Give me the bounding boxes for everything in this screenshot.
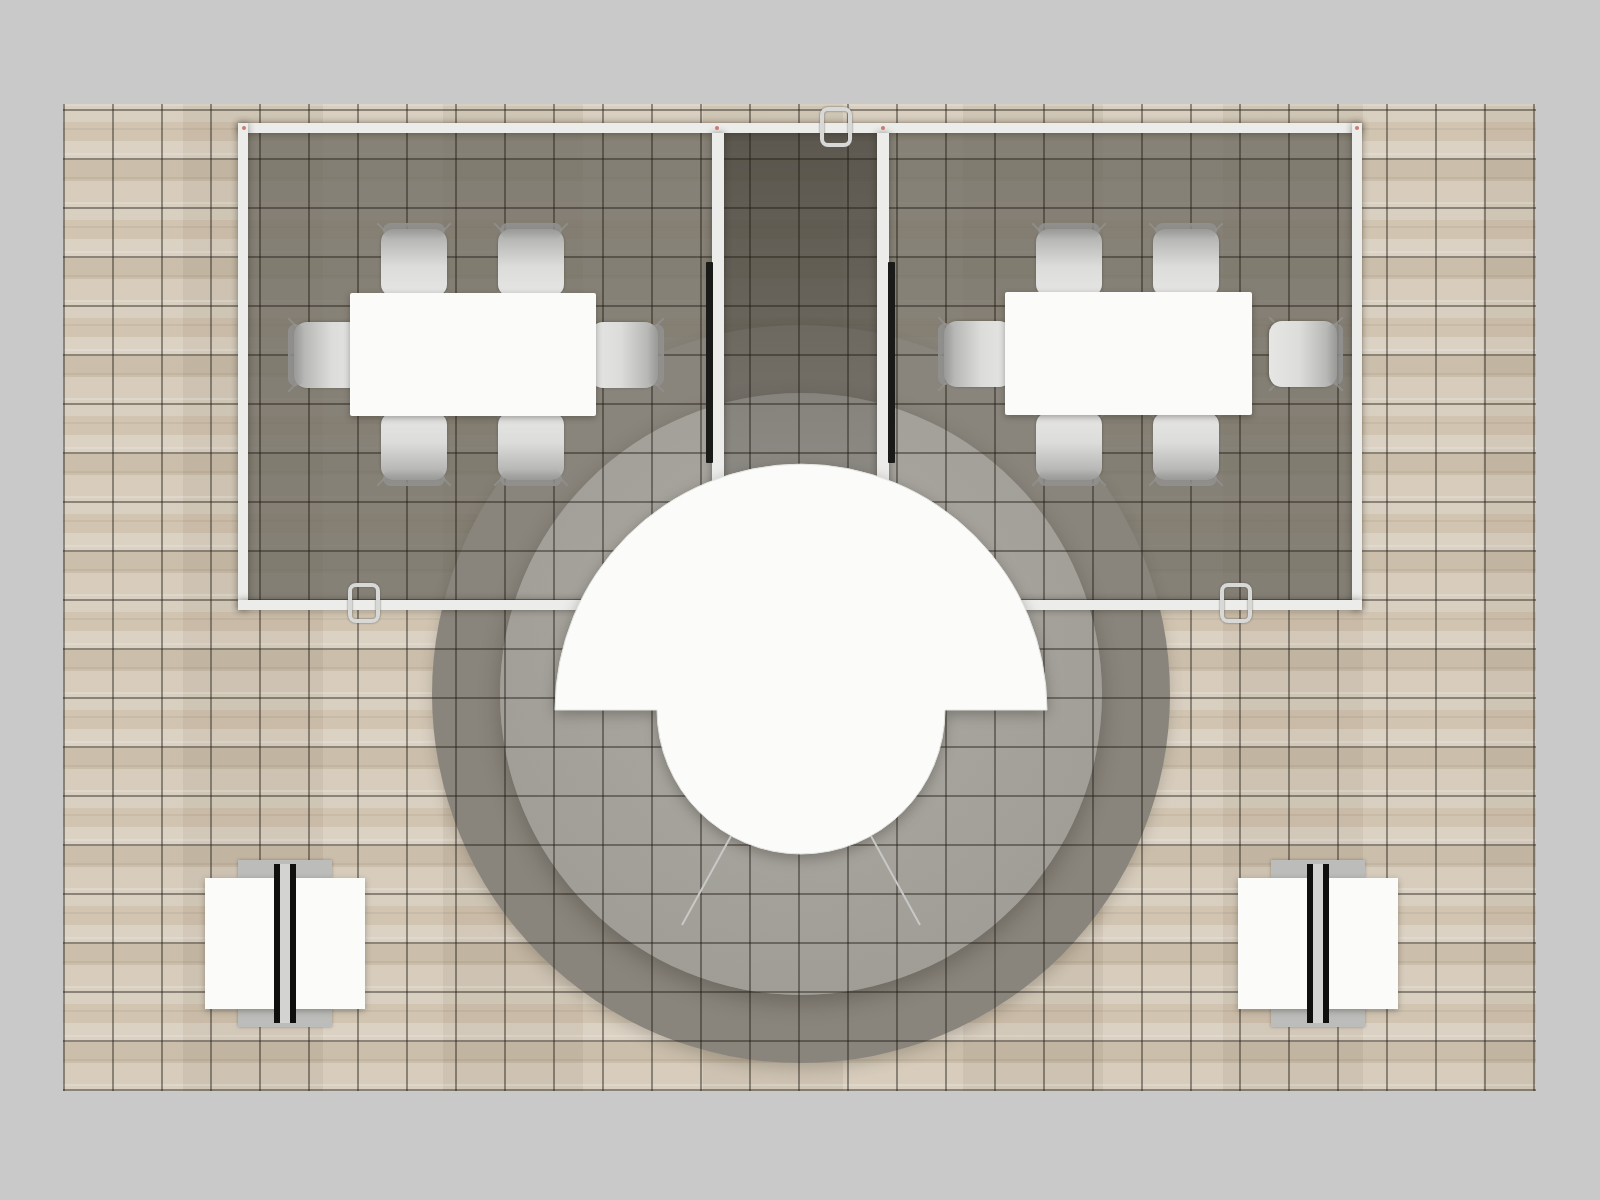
clamp-icon[interactable] [348, 583, 380, 623]
clamp-icon[interactable] [1220, 583, 1252, 623]
wall-west[interactable] [238, 123, 248, 610]
wall-north[interactable] [238, 123, 1362, 133]
wall-south-left-segment[interactable] [238, 600, 724, 610]
chair[interactable] [1153, 223, 1219, 297]
junction-marker [242, 126, 246, 130]
junction-marker [1355, 126, 1359, 130]
chair[interactable] [1036, 412, 1102, 486]
corridor-wall-left[interactable] [712, 133, 724, 610]
chair[interactable] [938, 321, 1012, 387]
conference-table-left[interactable] [350, 293, 596, 416]
chair[interactable] [498, 412, 564, 486]
clamp-icon[interactable] [820, 107, 852, 147]
booth-floorplan-canvas [0, 0, 1600, 1200]
wall-display-right-room[interactable] [888, 262, 895, 463]
chair[interactable] [1269, 321, 1343, 387]
chair[interactable] [1036, 223, 1102, 297]
station-divider-panel[interactable] [274, 864, 296, 1023]
conference-table-right[interactable] [1005, 292, 1252, 415]
chair[interactable] [381, 223, 447, 297]
junction-marker [881, 602, 885, 606]
junction-marker [881, 126, 885, 130]
corridor-threshold-track [688, 608, 924, 616]
chair[interactable] [381, 412, 447, 486]
chair[interactable] [498, 223, 564, 297]
corridor-floor [724, 133, 877, 610]
wall-display-left-room[interactable] [706, 262, 713, 463]
chair[interactable] [1153, 412, 1219, 486]
wall-east[interactable] [1352, 123, 1362, 610]
junction-marker [715, 126, 719, 130]
station-divider-panel[interactable] [1307, 864, 1329, 1023]
junction-marker [715, 602, 719, 606]
wall-south-right-segment[interactable] [877, 600, 1362, 610]
chair[interactable] [590, 322, 664, 388]
